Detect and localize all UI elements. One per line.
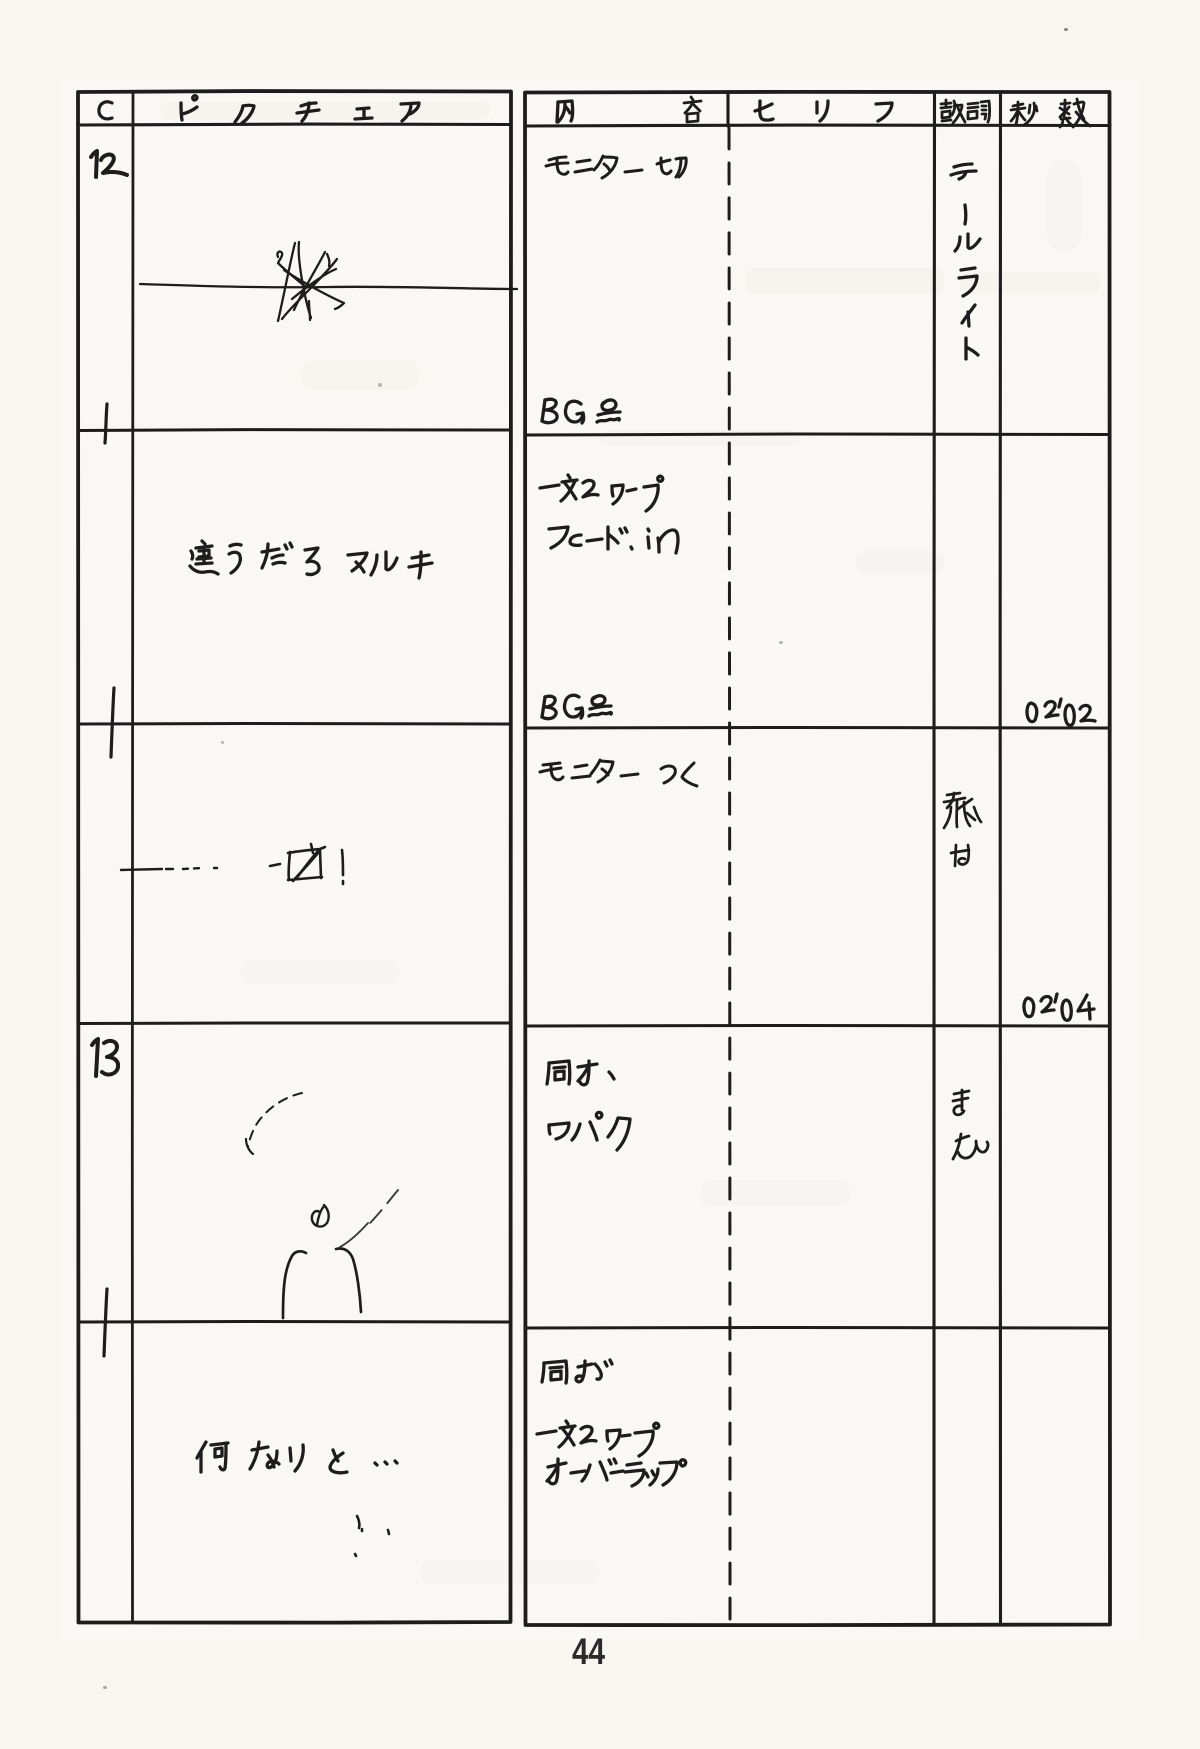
svg-text:44: 44 xyxy=(572,1631,605,1672)
